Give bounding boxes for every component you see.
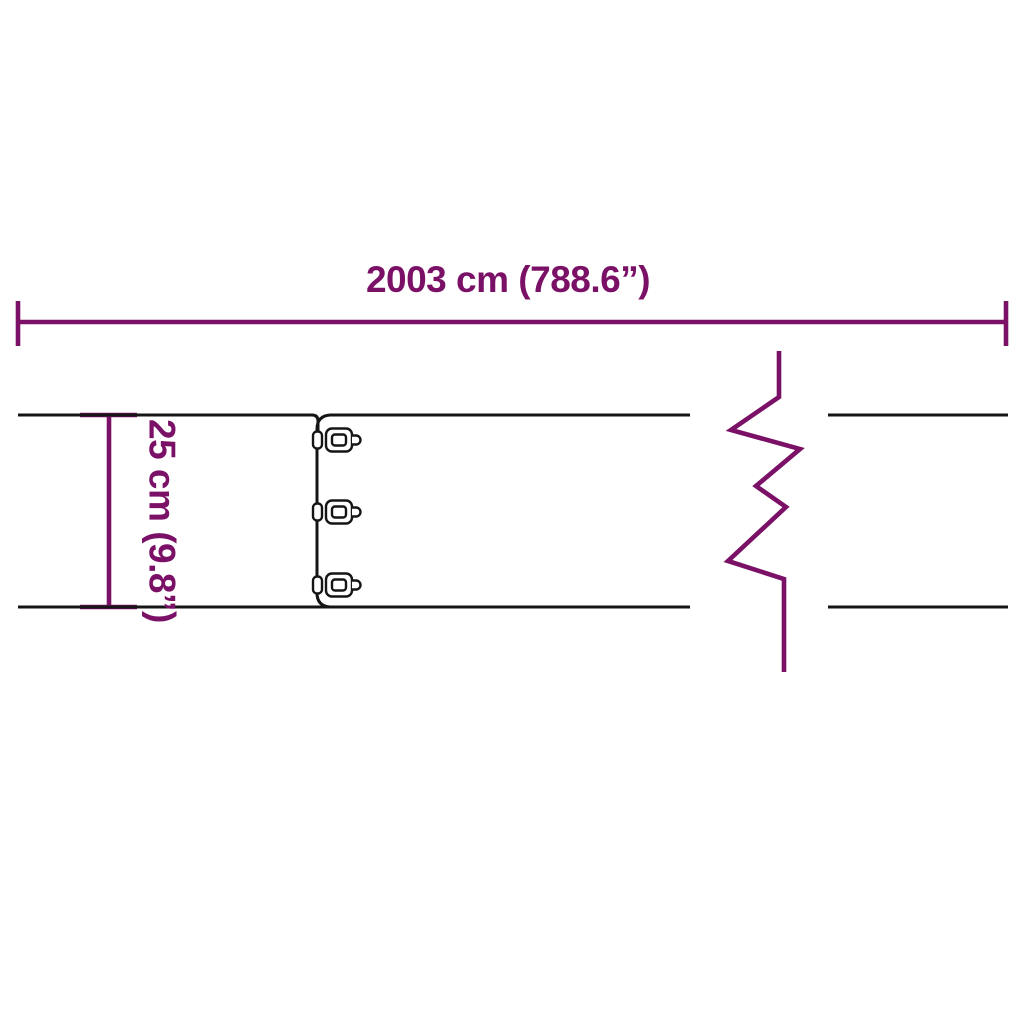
clip-icon xyxy=(313,429,361,452)
width-dimension-label: 2003 cm (788.6”) xyxy=(208,258,808,302)
height-dimension-line xyxy=(80,415,137,607)
break-zigzag-icon xyxy=(728,351,800,672)
width-dimension-line xyxy=(18,301,1006,346)
clip-icon xyxy=(313,574,361,597)
clip-icon xyxy=(313,501,361,524)
height-dimension-label: 25 cm (9.8”) xyxy=(141,419,182,624)
connector-clips xyxy=(313,429,361,597)
dimension-diagram: 2003 cm (788.6”) 25 cm (9.8”) xyxy=(0,0,1024,1024)
